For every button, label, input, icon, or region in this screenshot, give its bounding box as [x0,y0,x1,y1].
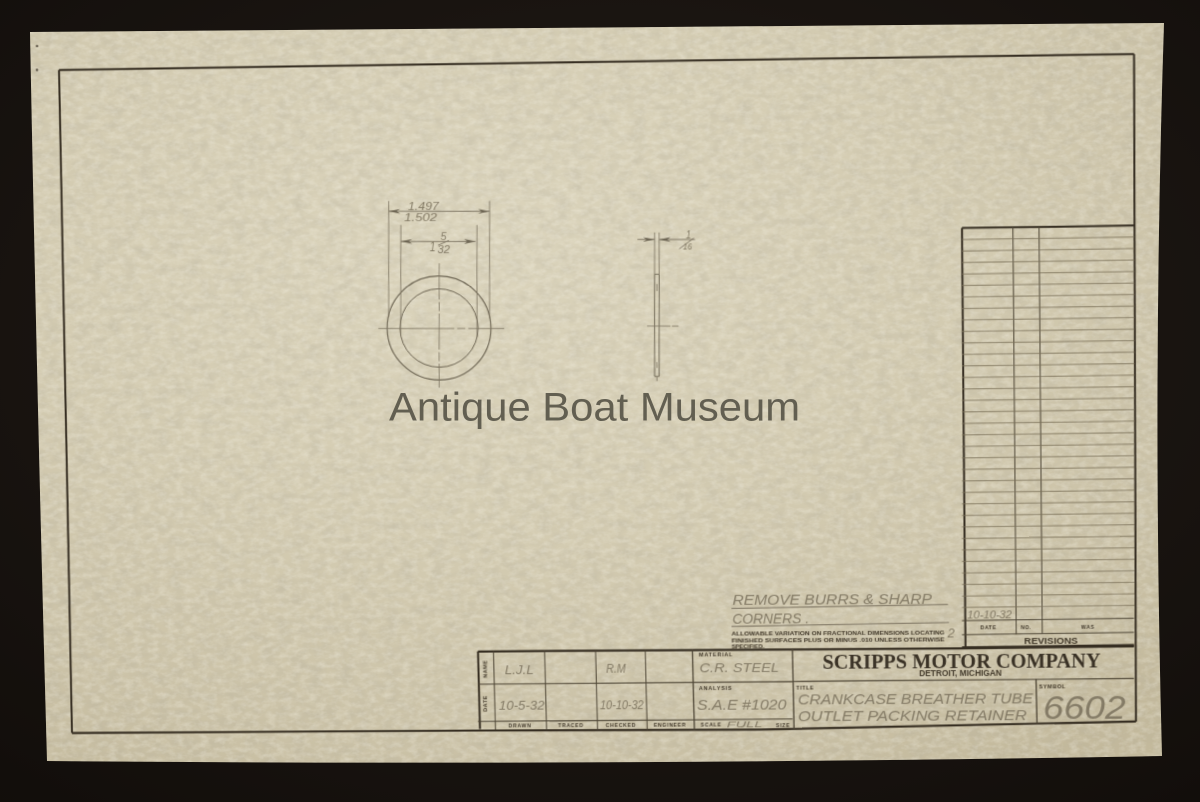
svg-text:Antique Boat Museum: Antique Boat Museum [389,385,800,429]
